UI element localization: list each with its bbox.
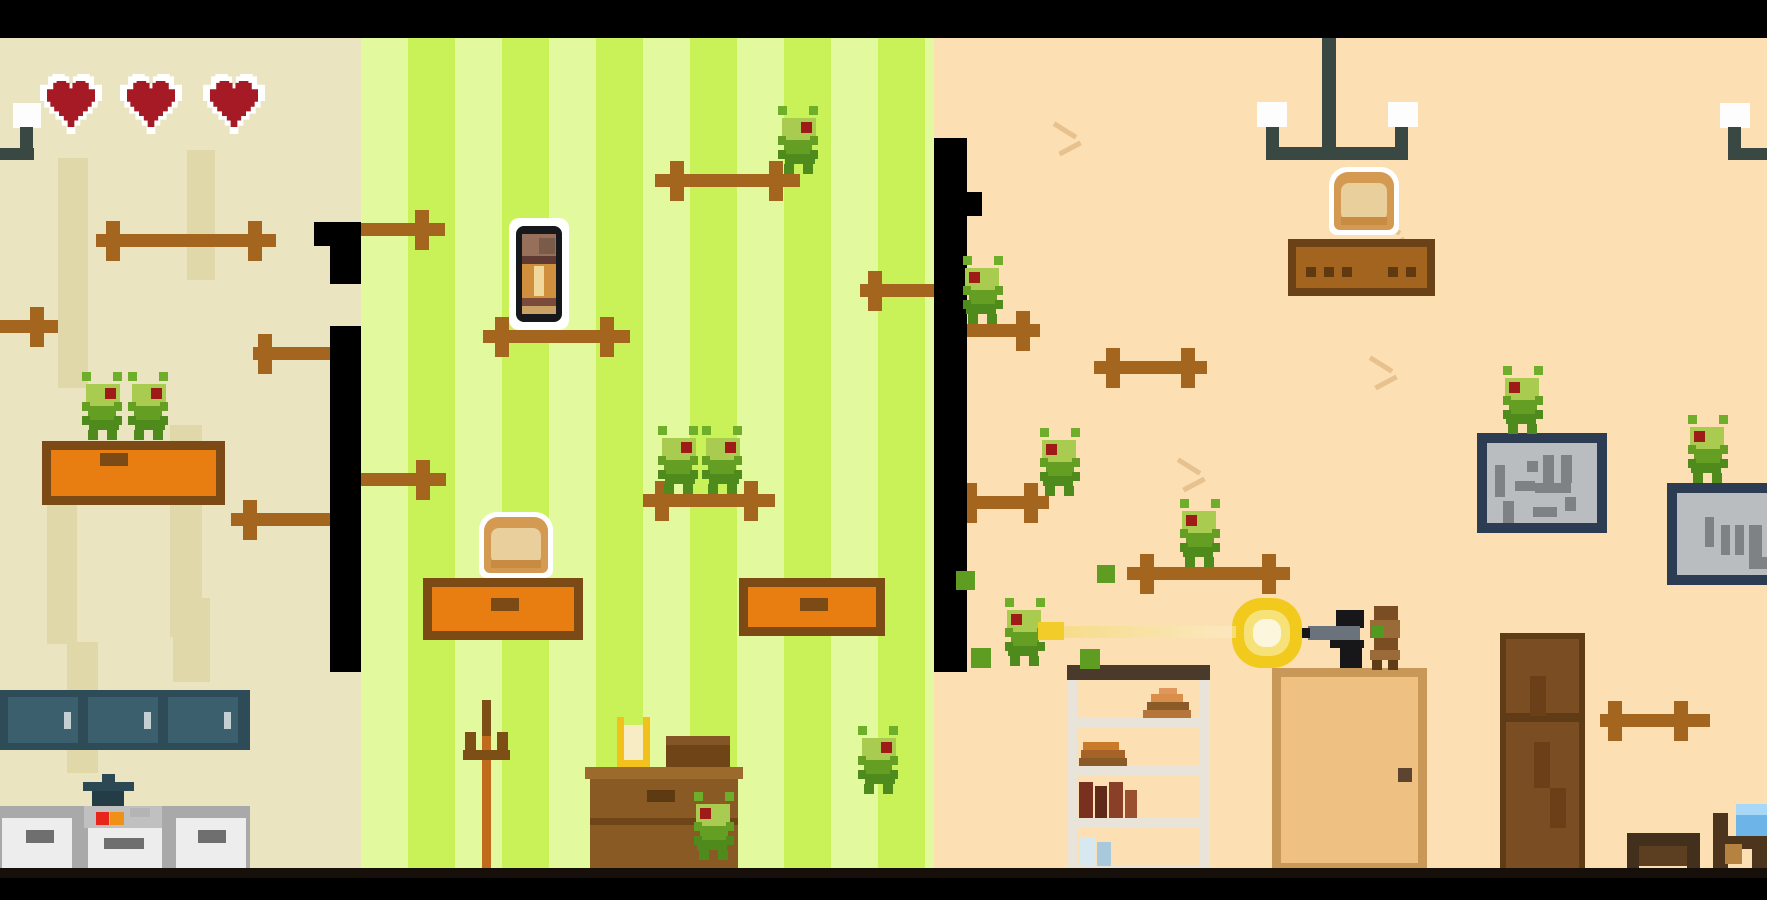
orange-table-platform: [423, 578, 583, 640]
wall-lamp-icon: [1720, 102, 1767, 160]
bug-enemy[interactable]: [778, 106, 818, 174]
wall-rod-platform: [1094, 348, 1207, 388]
wall-lamp-icon: [0, 102, 42, 160]
partition-wall: [934, 138, 967, 672]
bread-pickup[interactable]: [479, 512, 553, 578]
bug-debris: [971, 648, 991, 668]
notice-board: [1477, 433, 1607, 533]
wall-crack: [1050, 122, 1084, 166]
wall-rod-platform: [253, 334, 330, 374]
letterbox-bottom: [0, 878, 1767, 900]
bug-enemy[interactable]: [694, 792, 734, 860]
bug-enemy[interactable]: [963, 256, 1003, 324]
bug-enemy[interactable]: [82, 372, 122, 440]
letterbox-top: [0, 0, 1767, 38]
orange-table-platform: [739, 578, 885, 636]
kitchen-lower-counter: [0, 806, 250, 868]
partition-wall: [330, 222, 361, 284]
bug-enemy[interactable]: [858, 726, 898, 794]
wall-rod-platform: [361, 460, 446, 500]
health-heart-icon: [120, 74, 182, 134]
wallpaper-stripe: [58, 158, 88, 388]
bug-enemy[interactable]: [658, 426, 698, 494]
health-heart-icon: [203, 74, 265, 134]
cooking-pot: [83, 774, 134, 810]
orange-drawer-platform: [42, 441, 225, 505]
bread-pickup[interactable]: [1329, 167, 1399, 235]
partition-wall-notch: [967, 192, 982, 216]
bookshelf: [1067, 665, 1210, 875]
game-stage: [0, 0, 1767, 900]
ceiling-lamp-icon: [1257, 38, 1418, 162]
wall-rod-platform: [860, 271, 934, 311]
wall-rod-platform: [0, 307, 58, 347]
kitchen-upper-cabinet: [0, 690, 250, 750]
bug-enemy[interactable]: [1503, 366, 1543, 434]
bug-enemy[interactable]: [1688, 415, 1728, 483]
room-door[interactable]: [1272, 668, 1427, 872]
bug-debris: [1097, 565, 1115, 583]
bug-enemy[interactable]: [702, 426, 742, 494]
bug-debris: [1080, 649, 1100, 669]
bullet-tracer: [1038, 620, 1238, 642]
partition-wall-notch: [314, 222, 332, 246]
bug-enemy[interactable]: [1040, 428, 1080, 496]
coat-rack: [458, 700, 510, 876]
pistol: [1300, 610, 1366, 670]
wall-rod-platform: [361, 210, 445, 250]
wall-rod-platform: [96, 221, 276, 261]
wardrobe: [1500, 633, 1585, 875]
player-character[interactable]: [1368, 606, 1404, 670]
candle-holder: [617, 717, 650, 767]
wall-shelf: [1288, 239, 1435, 296]
ammo-pickup[interactable]: [509, 218, 569, 330]
notice-board: [1667, 483, 1767, 585]
health-heart-icon: [40, 74, 102, 134]
wall-rod-platform: [231, 500, 330, 540]
partition-wall: [330, 326, 361, 672]
wallpaper-stripe: [173, 598, 210, 682]
wall-crack: [1174, 458, 1208, 502]
bug-debris: [956, 571, 975, 590]
bug-enemy[interactable]: [128, 372, 168, 440]
wall-rod-platform: [1600, 701, 1710, 741]
wall-crack: [1366, 356, 1400, 400]
muzzle-flash: [1232, 598, 1302, 668]
bed: [1713, 804, 1767, 877]
bug-enemy[interactable]: [1180, 499, 1220, 567]
